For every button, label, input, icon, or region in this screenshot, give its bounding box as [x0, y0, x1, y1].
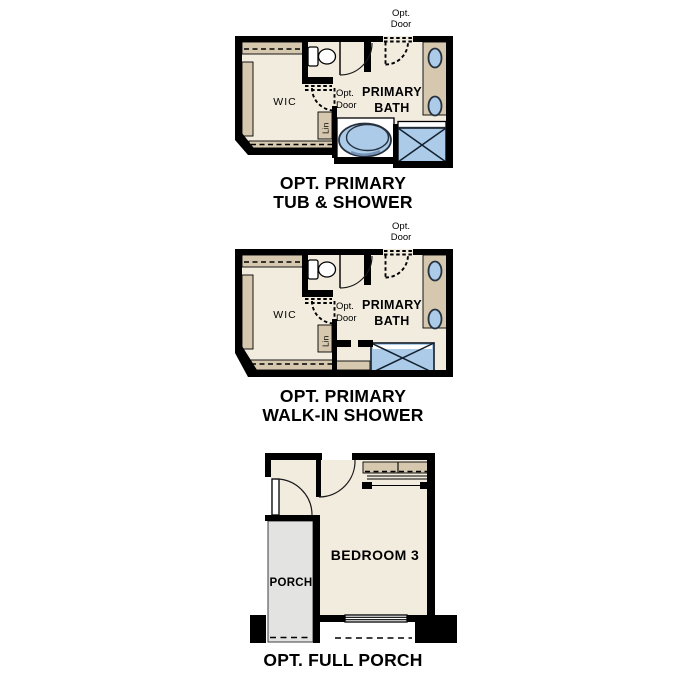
vanity-double-sink [423, 42, 447, 116]
primary-bath-label-line1: PRIMARY [362, 85, 422, 99]
primary-bath-label-line2: BATH [374, 314, 409, 328]
opt-door-callout-line1: Opt. [381, 9, 421, 20]
title-line1: OPT. PRIMARY [233, 174, 453, 193]
opt-door-callout: Opt. Door [381, 222, 421, 243]
toilet-fixture [308, 47, 336, 66]
opt-door-label-line2: Door [336, 313, 357, 324]
bedroom-closet [362, 462, 433, 489]
title-line1: OPT. FULL PORCH [233, 651, 453, 670]
title-line2: WALK-IN SHOWER [233, 406, 453, 425]
bedroom-floor [320, 518, 435, 622]
porch-pillar-right [415, 615, 457, 643]
opt-door-label-line1: Opt. [336, 301, 354, 312]
figure-title-full-porch: OPT. FULL PORCH [233, 651, 453, 670]
opt-door-label-line2: Door [336, 100, 357, 111]
primary-bath-label-line1: PRIMARY [362, 298, 422, 312]
porch-pillar-left [250, 615, 266, 643]
title-line1: OPT. PRIMARY [233, 387, 453, 406]
opt-door-callout-line1: Opt. [381, 222, 421, 233]
title-line2: TUB & SHOWER [233, 193, 453, 212]
bedroom-window [345, 615, 407, 622]
wic-label: WIC [273, 96, 296, 108]
walk-in-shower [371, 343, 434, 373]
opt-door-callout-line2: Door [381, 20, 421, 31]
wic-label: WIC [273, 309, 296, 321]
opt-primary-tub-shower-plan: WIC Opt. Door PRIMARY BATH Lin [235, 36, 453, 172]
figure-title-walk-in-shower: OPT. PRIMARY WALK-IN SHOWER [233, 387, 453, 425]
opt-door-label-line1: Opt. [336, 88, 354, 99]
corner-shower [398, 122, 446, 163]
linen-label: Lin [321, 122, 331, 134]
vanity-double-sink [423, 255, 447, 329]
opt-primary-walk-in-shower-plan: WIC Opt. Door PRIMARY BATH Lin [235, 249, 453, 385]
opt-door-callout-line2: Door [381, 233, 421, 244]
primary-bath-label-line2: BATH [374, 101, 409, 115]
linen-label: Lin [321, 335, 331, 347]
figure-title-tub-shower: OPT. PRIMARY TUB & SHOWER [233, 174, 453, 212]
opt-door-callout: Opt. Door [381, 9, 421, 30]
opt-full-porch-plan: BEDROOM 3 PORCH [248, 450, 460, 648]
toilet-fixture [308, 260, 336, 279]
floor-plan-sheet: Opt. Door [0, 0, 687, 687]
bathtub [337, 118, 394, 158]
porch-label: PORCH [269, 577, 312, 589]
bedroom-label: BEDROOM 3 [331, 547, 419, 563]
